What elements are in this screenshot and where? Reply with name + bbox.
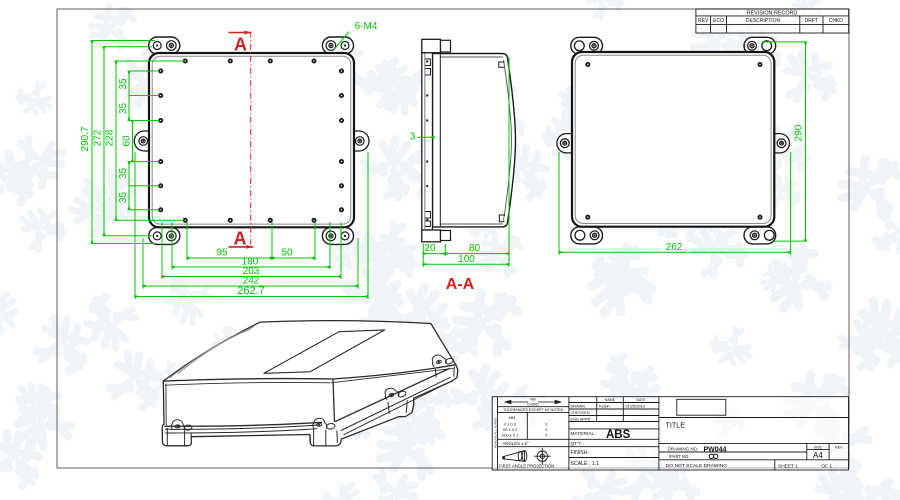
svg-text:/PART NO.: /PART NO. xyxy=(669,454,689,459)
svg-text:DESCRIPTION: DESCRIPTION xyxy=(746,18,781,24)
svg-text:FINISH:: FINISH: xyxy=(571,450,589,456)
svg-text:MM: MM xyxy=(530,398,536,402)
svg-text:35: 35 xyxy=(118,78,129,90)
svg-text:290.7: 290.7 xyxy=(80,126,91,151)
svg-text:NAME: NAME xyxy=(605,398,616,402)
svg-text:Kelvin: Kelvin xyxy=(599,403,610,408)
svg-text:TITLE: TITLE xyxy=(666,421,686,430)
svg-text:CHKD: CHKD xyxy=(829,18,844,24)
svg-text:A: A xyxy=(234,229,247,249)
svg-text:FIRST ANGLE PROJECTION: FIRST ANGLE PROJECTION xyxy=(499,463,554,468)
svg-text:20: 20 xyxy=(424,243,436,254)
svg-text:X: X xyxy=(545,432,548,437)
svg-text:95: 95 xyxy=(216,248,228,259)
svg-text:01/25/2013: 01/25/2013 xyxy=(626,403,645,408)
svg-text:80: 80 xyxy=(469,243,481,254)
svg-text:262.7: 262.7 xyxy=(237,285,265,297)
svg-text:ENG APPR: ENG APPR xyxy=(571,416,591,421)
svg-text:60: 60 xyxy=(122,135,133,147)
svg-text:100: 100 xyxy=(458,254,475,265)
svg-text:.000 ± 0.1: .000 ± 0.1 xyxy=(501,432,518,437)
svg-text:OF 1: OF 1 xyxy=(821,463,832,469)
svg-text:50: 50 xyxy=(281,248,293,259)
svg-text:REV: REV xyxy=(698,18,709,24)
svg-text:A-A: A-A xyxy=(446,276,475,293)
svg-text:X: X xyxy=(545,421,548,426)
svg-text:A: A xyxy=(234,35,247,55)
svg-text:272: 272 xyxy=(93,129,104,146)
svg-text:CHECKED: CHECKED xyxy=(571,410,590,415)
svg-text:DATE: DATE xyxy=(636,398,646,402)
svg-text:ECO: ECO xyxy=(713,18,724,24)
svg-text:ANGLES ± 5°: ANGLES ± 5° xyxy=(503,441,530,446)
svg-text:.00 ± 0.2: .00 ± 0.2 xyxy=(502,427,517,432)
svg-text:ABS: ABS xyxy=(606,429,631,441)
svg-text:35: 35 xyxy=(118,168,129,180)
svg-text:REMOVE ALL BURRS: REMOVE ALL BURRS xyxy=(494,418,498,448)
svg-text:PW044: PW044 xyxy=(704,447,727,454)
svg-text:DO NOT SCALE DRAWING: DO NOT SCALE DRAWING xyxy=(666,463,727,469)
svg-text:3: 3 xyxy=(410,132,416,143)
svg-text:DRAWN: DRAWN xyxy=(571,404,586,409)
svg-text:MATERIAL :: MATERIAL : xyxy=(571,431,597,437)
svg-text:A4: A4 xyxy=(813,451,823,460)
svg-text:6-M4: 6-M4 xyxy=(355,21,378,32)
svg-text:SHEET 1: SHEET 1 xyxy=(778,463,798,469)
svg-text:262: 262 xyxy=(666,242,683,253)
svg-text:35: 35 xyxy=(118,192,129,204)
svg-text:QT'Y :: QT'Y : xyxy=(571,441,584,447)
svg-text:290: 290 xyxy=(794,124,805,141)
svg-text:MM: MM xyxy=(509,415,515,420)
svg-text:.0 ± 0.3: .0 ± 0.3 xyxy=(503,421,516,426)
svg-text:REV: REV xyxy=(835,446,843,450)
svg-text:DRFT: DRFT xyxy=(805,18,818,24)
svg-text:X: X xyxy=(545,427,548,432)
svg-text:CHORD: CHORD xyxy=(527,402,539,406)
svg-text:TOLERANCES EXCEPT AS NOTED: TOLERANCES EXCEPT AS NOTED xyxy=(503,408,564,412)
svg-text:SIZE: SIZE xyxy=(814,446,823,450)
svg-text:35: 35 xyxy=(118,103,129,115)
svg-text:228: 228 xyxy=(105,129,116,146)
svg-text:SCALE : 1:1: SCALE : 1:1 xyxy=(571,461,600,467)
svg-text:REVISION RECORD: REVISION RECORD xyxy=(747,10,798,16)
svg-text:DRAWING NO.: DRAWING NO. xyxy=(668,447,699,452)
